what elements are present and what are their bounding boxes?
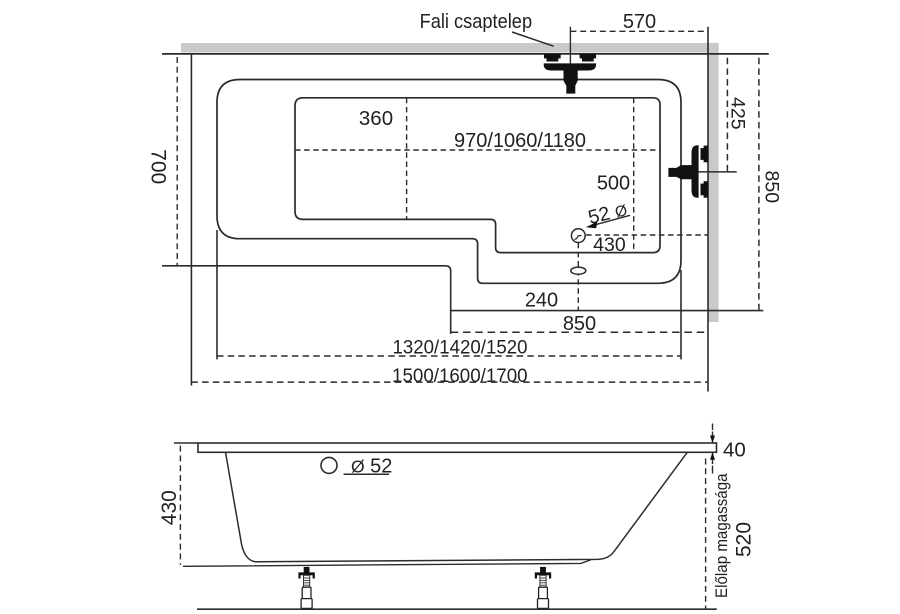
svg-text:1320/1420/1520: 1320/1420/1520 (393, 337, 528, 359)
svg-text:1500/1600/1700: 1500/1600/1700 (392, 365, 528, 387)
svg-text:240: 240 (525, 290, 558, 312)
svg-text:500: 500 (597, 173, 630, 195)
svg-text:360: 360 (359, 107, 393, 130)
svg-text:Előlap magassága: Előlap magassága (713, 473, 731, 598)
svg-text:520: 520 (733, 522, 756, 557)
svg-text:Fali csaptelep: Fali csaptelep (420, 10, 532, 33)
svg-text:40: 40 (723, 439, 746, 462)
svg-text:430: 430 (158, 490, 181, 525)
svg-text:970/1060/1180: 970/1060/1180 (454, 130, 586, 152)
svg-text:850: 850 (761, 171, 783, 204)
svg-text:425: 425 (727, 97, 749, 130)
svg-text:700: 700 (146, 149, 169, 184)
svg-text:570: 570 (623, 11, 656, 33)
svg-text:430: 430 (593, 234, 626, 256)
